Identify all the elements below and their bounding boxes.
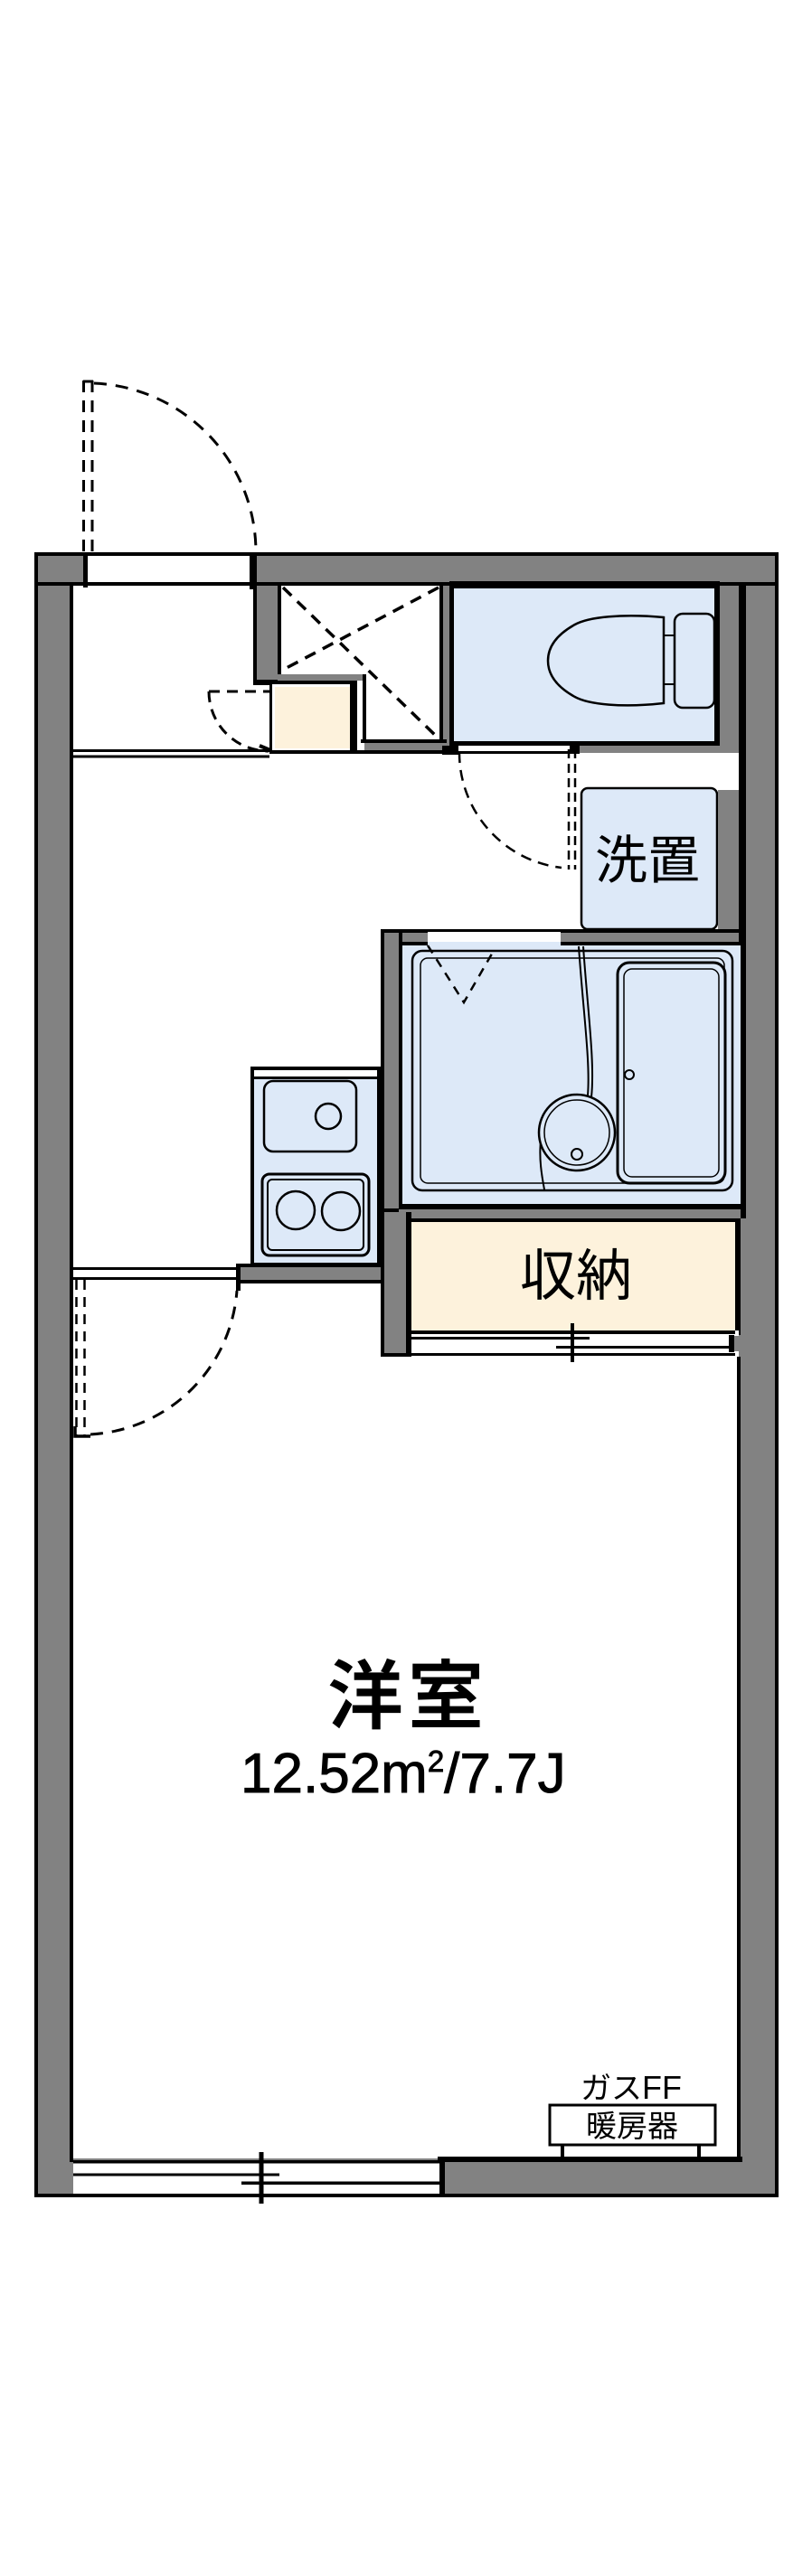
svg-text:12.52m2/7.7J: 12.52m2/7.7J bbox=[241, 1743, 566, 1805]
svg-text:FF: FF bbox=[642, 2069, 682, 2106]
